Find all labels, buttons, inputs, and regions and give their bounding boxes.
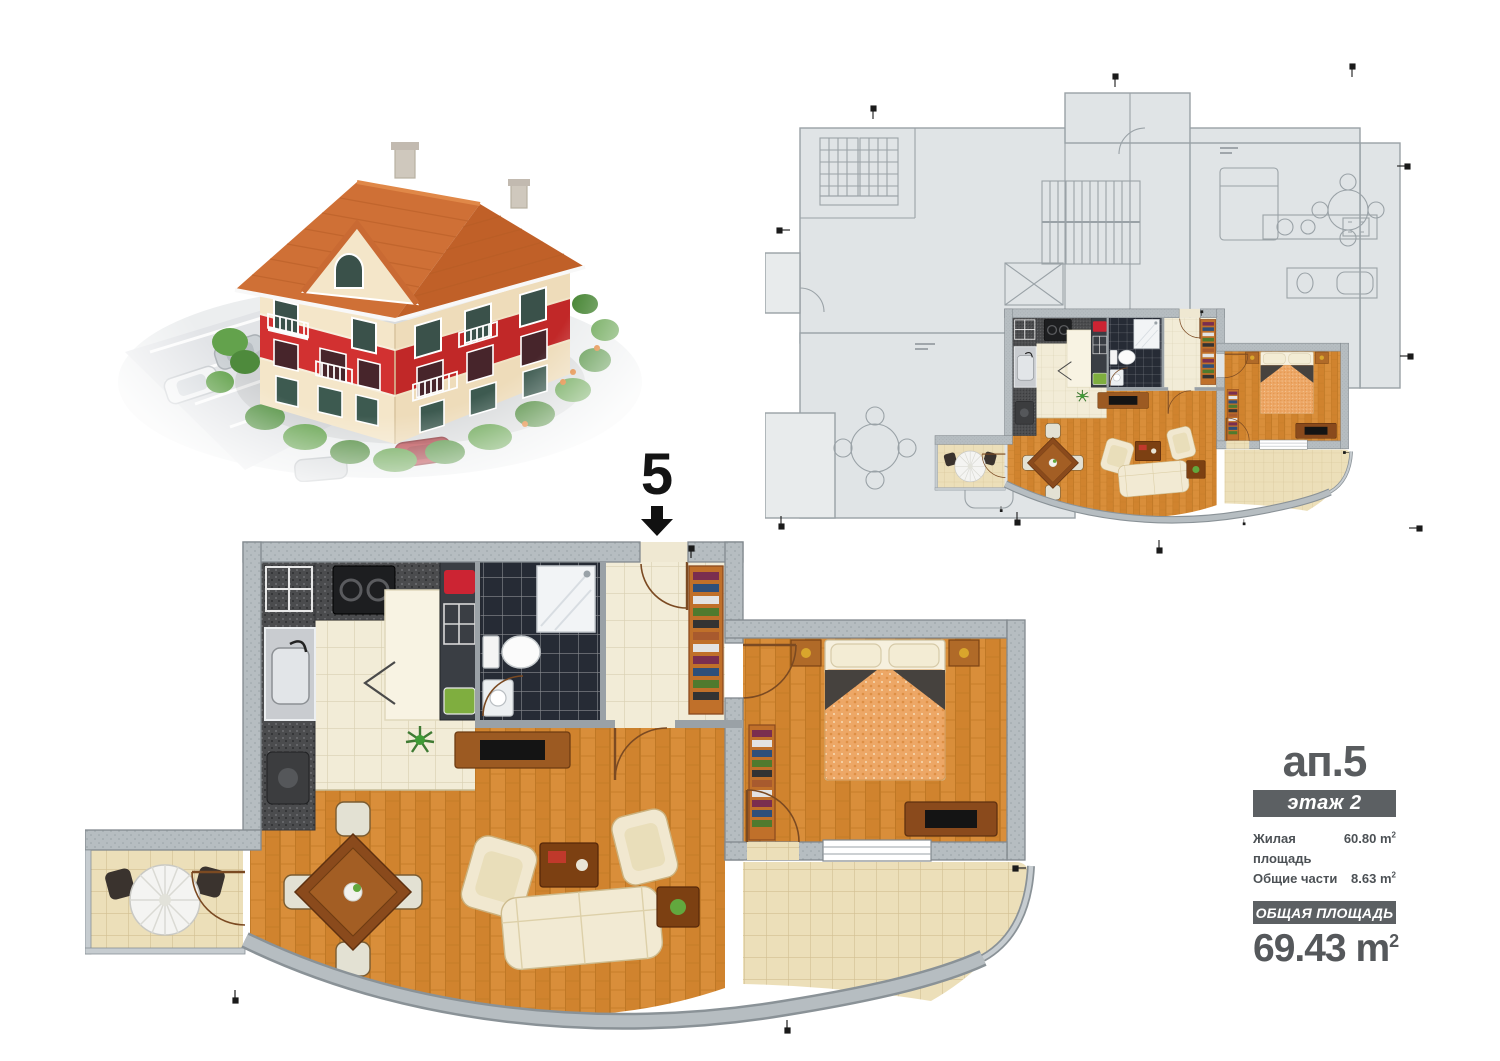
common-area-number: 8.63 (1351, 871, 1376, 886)
floor-overview-svg (765, 58, 1435, 570)
total-area-badge-label: ОБЩАЯ ПЛОЩАДЬ (1256, 905, 1394, 921)
common-area-unit: m (1380, 871, 1392, 886)
living-area-unit: m (1380, 831, 1392, 846)
living-area-value: 60.80 m2 (1344, 829, 1396, 869)
total-area-badge: ОБЩАЯ ПЛОЩАДЬ (1253, 901, 1396, 924)
apartment-5-plan (85, 540, 1045, 1045)
common-area-label: Общие части (1253, 869, 1337, 889)
living-area-number: 60.80 (1344, 831, 1377, 846)
house-render-svg (95, 52, 665, 482)
down-arrow-icon (640, 506, 674, 536)
living-area-label: Жилая площадь (1253, 829, 1344, 869)
apartment-number: 5 (620, 446, 694, 504)
apartment-number-marker: 5 (620, 446, 694, 536)
floor-overview-plan (765, 58, 1435, 570)
floor-badge-label: этаж 2 (1287, 792, 1361, 815)
total-area-value: 69.43 m2 (1253, 927, 1396, 971)
common-area-row: Общие части 8.63 m2 (1253, 869, 1396, 889)
total-area-number: 69.43 (1253, 927, 1346, 970)
total-area-unit: m (1355, 927, 1389, 970)
total-area-unit-sup: 2 (1389, 931, 1398, 951)
floor-badge: этаж 2 (1253, 790, 1396, 817)
living-area-unit-sup: 2 (1392, 831, 1396, 840)
info-panel: ап.5 этаж 2 Жилая площадь 60.80 m2 Общие… (1253, 740, 1396, 971)
house-render-image (95, 52, 665, 482)
apartment-5-plan-svg (85, 540, 1045, 1045)
apartment-title: ап.5 (1253, 740, 1396, 784)
common-area-unit-sup: 2 (1392, 871, 1396, 880)
page: 5 ап.5 этаж 2 Жилая площадь 60.80 m2 Общ… (0, 0, 1500, 1061)
area-rows: Жилая площадь 60.80 m2 Общие части 8.63 … (1253, 829, 1396, 889)
common-area-value: 8.63 m2 (1351, 869, 1396, 889)
living-area-row: Жилая площадь 60.80 m2 (1253, 829, 1396, 869)
